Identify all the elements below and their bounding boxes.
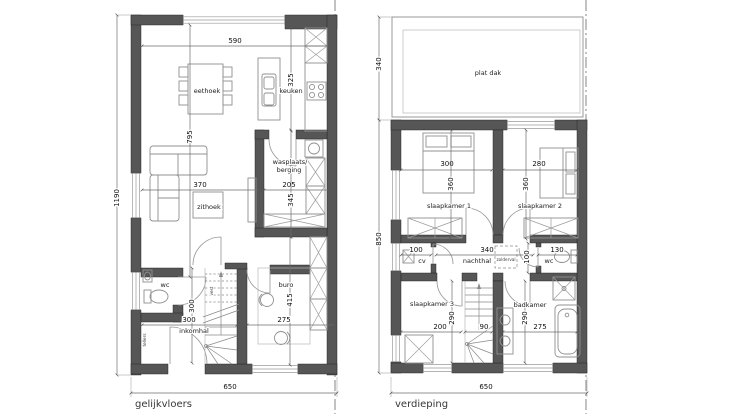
dim-wasplaats-width: 205	[282, 181, 295, 189]
badkamer-label: badkamer	[514, 301, 547, 309]
upper-stairs	[465, 281, 493, 363]
vest-label: vest	[209, 286, 214, 295]
door-slaapkamer1	[466, 208, 493, 235]
desk-chair-1	[261, 294, 274, 307]
wc-label: wc	[161, 281, 170, 289]
upper-floor-name: verdieping	[395, 399, 448, 410]
ground-furniture	[143, 28, 327, 345]
dim-sk3-depth: 290	[448, 311, 456, 324]
tellers-label: tellers	[142, 333, 147, 346]
floorplan-sheet: vest	[0, 0, 736, 414]
window-left-sk1	[391, 170, 401, 220]
dim-badkamer-width: 275	[533, 323, 546, 331]
dim-wc-width: 130	[550, 246, 563, 254]
dim-wasplaats-depth: 345	[287, 193, 295, 206]
dim-sk3-width: 200	[433, 323, 446, 331]
dim-total-depth: 1190	[113, 189, 121, 207]
dim-floor-depth: 850	[375, 232, 383, 245]
dim-ground-total-width: 650	[223, 383, 236, 391]
window-bottom-badkamer	[503, 363, 553, 373]
toilet-bowl	[150, 290, 168, 303]
dim-sk1-width: 300	[440, 160, 453, 168]
dim-buro-width: 275	[277, 316, 290, 324]
door-living-inkomhal	[193, 237, 221, 265]
eethoek-label: eethoek	[194, 87, 221, 95]
dim-zithoek-width: 370	[193, 181, 206, 189]
dim-sk2-width: 280	[532, 160, 545, 168]
ground-floor-plan: vest	[113, 15, 337, 410]
cv-label: cv	[418, 257, 426, 265]
dim-plat-dak-depth: 340	[375, 57, 383, 70]
dim-nachthal-width: 340	[480, 246, 493, 254]
window-left-cv	[391, 243, 401, 271]
slaapkamer3-label: slaapkamer 3	[410, 300, 454, 308]
door-buro	[247, 270, 270, 293]
upper-floor-plan: plat dak	[375, 17, 587, 410]
dim-cv-width: 100	[409, 246, 422, 254]
buro-desk	[258, 268, 310, 345]
window-left-sk3	[391, 335, 401, 362]
window-top	[183, 15, 285, 25]
window-bottom-sk3	[423, 363, 452, 373]
kitchen-counter	[305, 28, 327, 131]
wardrobe-sk1	[408, 218, 462, 238]
plat-dak-label: plat dak	[475, 69, 502, 77]
zolderval-label: zolderval	[496, 257, 515, 262]
slaapkamer2-label: slaapkamer 2	[518, 202, 562, 210]
nachthal-label: nachthal	[463, 257, 491, 265]
flat-roof: plat dak	[392, 17, 583, 117]
ground-room-labels: eethoek keuken wasplaats/ berging zithoe…	[142, 87, 308, 347]
kitchen-island	[258, 58, 280, 120]
dim-badkamer-depth: 290	[521, 311, 529, 324]
window-left-living	[131, 173, 141, 218]
dim-sk2-depth: 360	[522, 177, 530, 190]
buro-closet	[310, 237, 327, 330]
bed-2	[540, 148, 578, 198]
inkomhal-label: inkomhal	[179, 327, 209, 335]
window-bottom-buro	[252, 364, 298, 374]
dim-upper-total-width: 650	[479, 383, 492, 391]
zolderval-hatch: zolderval	[495, 246, 517, 268]
dim-inkomhal-width: 300	[182, 316, 195, 324]
keuken-label: keuken	[279, 87, 302, 95]
dim-inkomhal-depth: 300	[188, 299, 196, 312]
window-left-wc	[131, 272, 141, 310]
dim-top-width: 590	[228, 37, 241, 45]
dim-keuken-depth: 325	[287, 73, 295, 86]
desk-chair-2	[275, 332, 288, 345]
ground-stairs: vest	[203, 268, 239, 364]
floorplan-canvas: vest	[0, 0, 736, 414]
stairs-direction-arrow	[477, 283, 481, 289]
dim-living-depth: 795	[186, 130, 194, 143]
dim-stairs-width: 90	[480, 323, 489, 331]
buro-label: buro	[279, 281, 294, 289]
wardrobe-sk2	[524, 218, 578, 238]
dim-nachthal-depth: 100	[523, 250, 531, 263]
dim-buro-depth: 415	[286, 293, 294, 306]
wasplaats-label-1: wasplaats/	[273, 158, 309, 166]
wc-upper-label: wc	[545, 257, 554, 265]
closet-sk3	[405, 335, 433, 363]
zithoek-label: zithoek	[197, 203, 221, 211]
bathtub	[555, 305, 580, 357]
ground-floor-name: gelijkvloers	[135, 399, 192, 410]
slaapkamer1-label: slaapkamer 1	[427, 202, 471, 210]
window-top-sk2	[507, 120, 555, 130]
wasplaats-label-2: berging	[277, 166, 302, 174]
dim-sk1-depth: 360	[447, 177, 455, 190]
cooktop	[307, 82, 326, 100]
